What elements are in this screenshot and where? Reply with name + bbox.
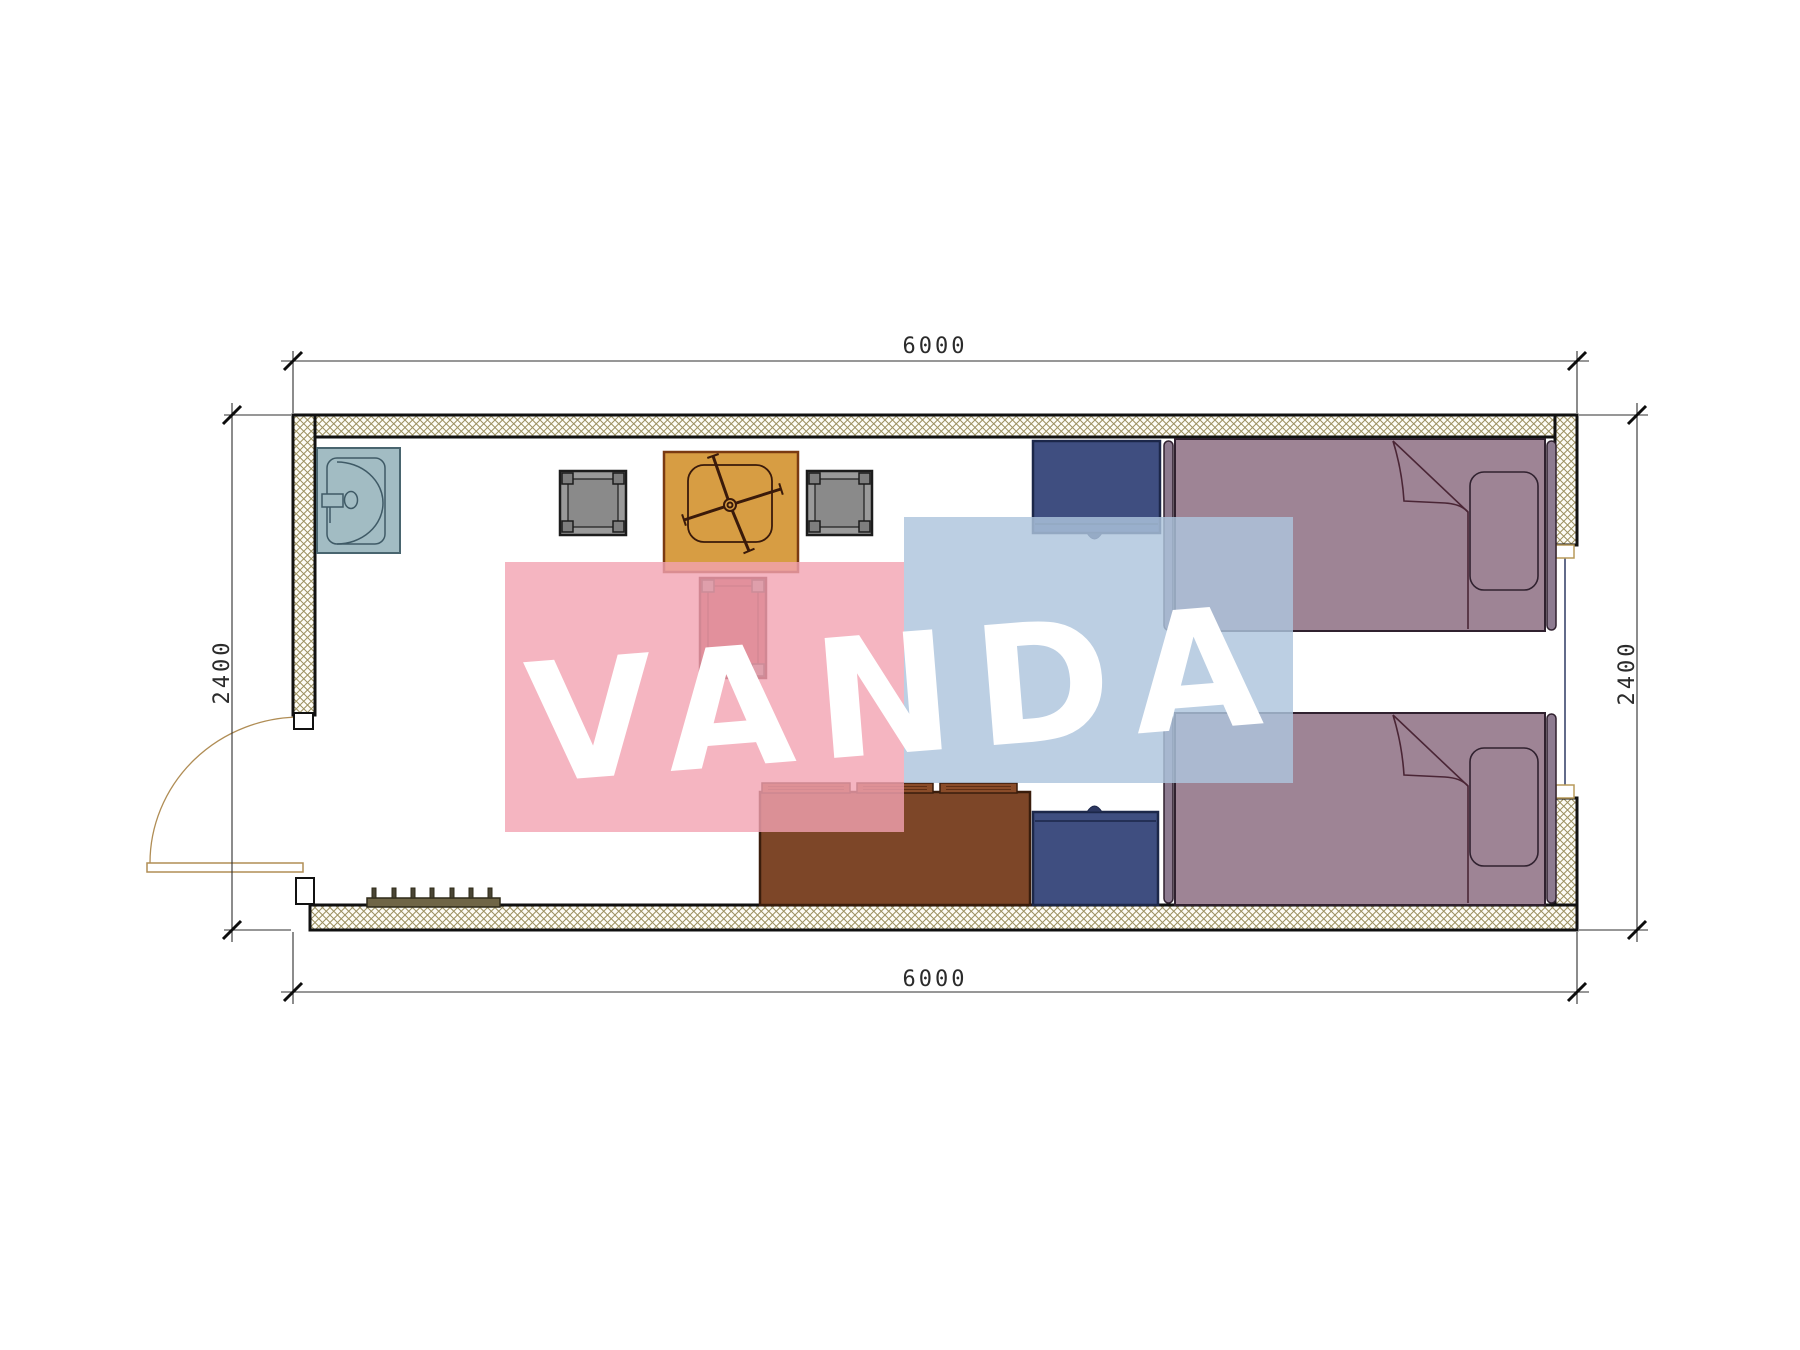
bed-headboard (1547, 441, 1556, 630)
faucet-handle-icon (345, 492, 358, 509)
desk (664, 452, 798, 572)
wall-top (293, 415, 1577, 437)
bed-headboard (1547, 714, 1556, 903)
window (1556, 545, 1574, 798)
dimension-right: 2400 (1579, 403, 1648, 942)
wall-left (293, 415, 315, 715)
window-sill-top (1556, 545, 1574, 558)
dimension-label-right: 2400 (1615, 641, 1640, 706)
door-jamb-bottom (296, 878, 314, 904)
window-sill-bottom (1556, 785, 1574, 798)
door-leaf (147, 863, 303, 872)
wall-right-upper (1555, 415, 1577, 545)
shoe-rack (367, 888, 500, 907)
dimension-left: 2400 (210, 403, 291, 942)
door (147, 713, 314, 904)
knob-icon (1087, 806, 1102, 812)
sink (317, 448, 400, 553)
dimension-top: 6000 (281, 334, 1589, 413)
nightstand-bottom (1033, 806, 1158, 905)
stool-left (560, 471, 626, 535)
door-jamb-top (294, 713, 313, 729)
floor-plan-canvas: VANDA 6000 6000 2400 2400 (0, 0, 1800, 1350)
door-swing-arc (150, 717, 301, 863)
dimension-label-top: 6000 (903, 334, 968, 359)
dimension-label-left: 2400 (210, 640, 235, 705)
faucet-icon (322, 494, 343, 507)
dimension-label-bottom: 6000 (903, 967, 968, 992)
dimension-bottom: 6000 (281, 932, 1589, 1004)
floor-plan-drawing: VANDA 6000 6000 2400 2400 (0, 0, 1800, 1350)
stool-right (807, 471, 872, 535)
wall-bottom (310, 905, 1577, 930)
desk-group (664, 452, 798, 572)
